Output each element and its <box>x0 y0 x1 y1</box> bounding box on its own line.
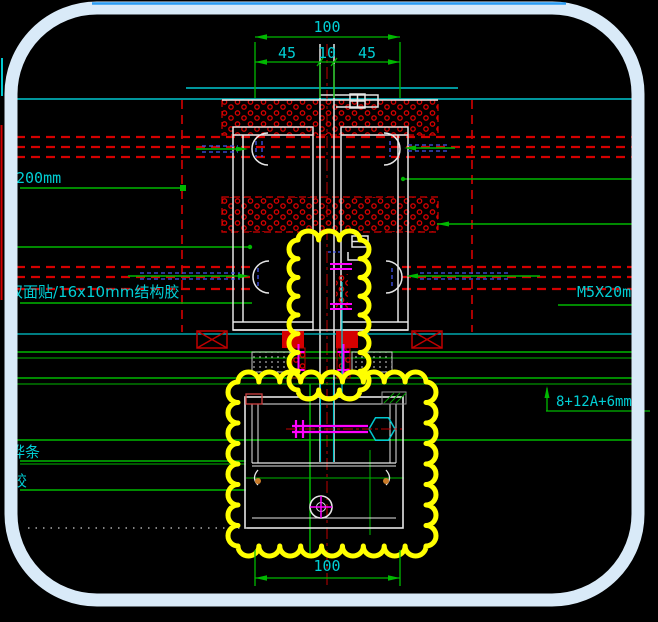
bottom-screw-port <box>310 496 332 518</box>
cad-drawing: 100 45 10 45 100 200mm 双面贴/16x10mm结构胶 桦条… <box>0 0 658 622</box>
label-screw-spec: M5X20mm <box>577 283 640 301</box>
dim-top-mid: 10 <box>318 44 336 62</box>
dim-bottom-total: 100 <box>313 557 340 575</box>
label-glass-spec: 8+12A+6mm <box>556 394 632 410</box>
dim-top-left: 45 <box>278 44 296 62</box>
dim-top-total: 100 <box>313 18 340 36</box>
label-embed-length: 200mm <box>16 169 61 187</box>
cad-canvas: 100 45 10 45 100 200mm 双面贴/16x10mm结构胶 桦条… <box>0 0 658 622</box>
dim-top-right: 45 <box>358 44 376 62</box>
label-structural-sealant: 双面贴/16x10mm结构胶 <box>8 283 179 301</box>
